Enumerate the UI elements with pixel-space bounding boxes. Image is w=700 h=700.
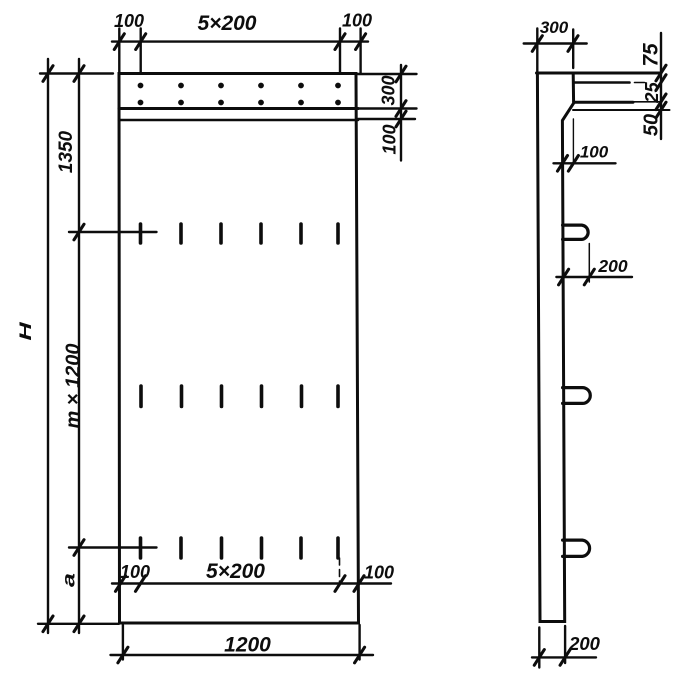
svg-text:5×200: 5×200 (206, 560, 265, 583)
svg-text:100: 100 (342, 11, 372, 31)
svg-text:100: 100 (380, 124, 400, 154)
svg-text:50: 50 (641, 114, 663, 136)
svg-text:200: 200 (597, 256, 627, 276)
svg-text:300: 300 (540, 18, 569, 37)
svg-text:75: 75 (640, 43, 663, 67)
svg-text:300: 300 (379, 75, 399, 105)
svg-text:100: 100 (114, 11, 144, 31)
svg-text:1200: 1200 (224, 634, 271, 657)
svg-text:a: a (58, 573, 79, 587)
svg-text:m × 1200: m × 1200 (63, 343, 85, 428)
svg-text:1350: 1350 (56, 130, 77, 173)
svg-text:25: 25 (641, 82, 662, 104)
svg-text:100: 100 (120, 562, 150, 582)
svg-text:100: 100 (580, 143, 609, 162)
svg-text:5×200: 5×200 (198, 12, 257, 35)
svg-text:200: 200 (568, 633, 601, 654)
svg-text:H: H (16, 322, 35, 341)
svg-text:100: 100 (364, 563, 394, 583)
